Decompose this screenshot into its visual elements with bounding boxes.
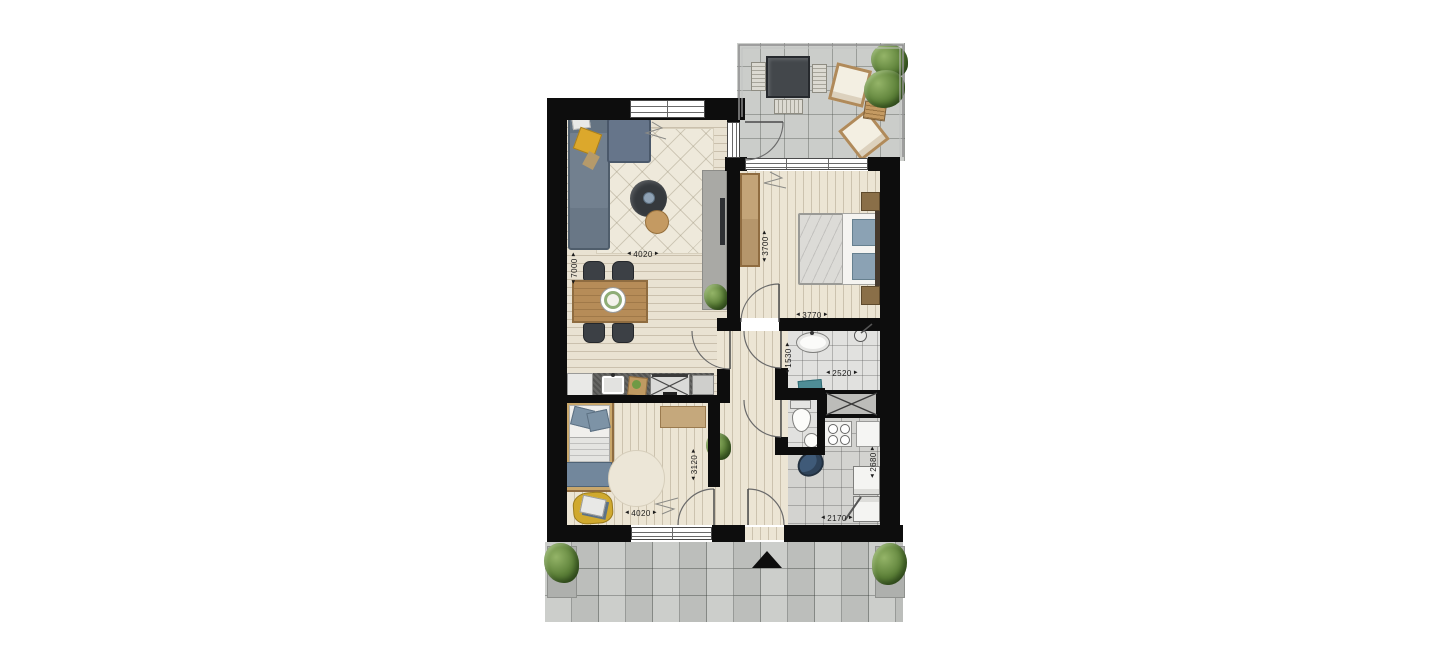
dimension-bedroom1-width: ◄3770► [791, 311, 833, 320]
dim-value: 3770 [802, 311, 821, 320]
dim-value: 7000 [570, 258, 579, 277]
dim-arrow-left-icon: ◄ [869, 473, 878, 479]
kitchen-fridge [567, 373, 593, 397]
bed2-duvet [566, 462, 612, 487]
dim-value: 4020 [633, 250, 652, 259]
dining-chair-3 [583, 323, 605, 343]
gallery-floor [545, 542, 903, 622]
floor-plan: ◄7000►◄4020►◄3700►◄3770►◄1530►◄2520►◄312… [0, 0, 1440, 648]
side-table-round [645, 210, 669, 234]
balcony-chair-bottom [774, 99, 803, 114]
window-bedroom2-bottom [631, 527, 712, 540]
dimension-bedroom2-width: ◄4020► [619, 509, 663, 518]
living-plant [704, 284, 728, 310]
dim-arrow-left-icon: ◄ [690, 475, 699, 481]
dimension-living-room-width: ◄4020► [621, 250, 665, 259]
dim-arrow-right-icon: ► [848, 514, 854, 523]
kitchen-herbs [632, 380, 641, 389]
dim-value: 3700 [761, 236, 770, 255]
dim-arrow-right-icon: ► [654, 250, 660, 259]
nightstand-top [861, 192, 880, 211]
dimension-bathroom-width: ◄2520► [822, 369, 862, 378]
dimension-bedroom2-depth: ◄3120► [690, 446, 699, 483]
wardrobe [740, 173, 760, 267]
bathroom-faucet [810, 331, 814, 335]
dim-arrow-right-icon: ► [784, 341, 793, 347]
washer-dial-3 [828, 435, 838, 445]
hall-floor [717, 331, 788, 525]
wall-right [880, 161, 900, 542]
wall-bedroom2-hall [708, 403, 720, 487]
dim-value: 3120 [690, 455, 699, 474]
wall-bedroom1-bottom-left [717, 318, 741, 331]
dim-arrow-left-icon: ◄ [626, 250, 632, 259]
balcony-table [766, 56, 810, 98]
wall-balcony-bottom-b [868, 157, 900, 171]
kitchen-faucet [611, 373, 615, 377]
wall-kitchen [567, 395, 720, 403]
washer-dial-2 [840, 424, 850, 434]
dim-arrow-left-icon: ◄ [624, 509, 630, 518]
dim-arrow-left-icon: ◄ [784, 369, 793, 375]
dim-arrow-left-icon: ◄ [820, 514, 826, 523]
dining-table-plate [600, 287, 626, 313]
bedroom2-rug-round [608, 450, 665, 507]
dimension-bathroom-depth: ◄1530► [784, 340, 793, 376]
dim-arrow-right-icon: ► [823, 311, 829, 320]
balcony-chair-right [812, 64, 827, 93]
bed2-sheet [569, 437, 610, 464]
bed1-pillow-bottom [852, 253, 876, 280]
bed1-duvet [798, 213, 844, 285]
kitchen-hood-knobs [652, 374, 688, 377]
sofa-chaise [607, 118, 651, 163]
washer-dial-1 [828, 424, 838, 434]
coffee-table-decor [643, 192, 655, 204]
wall-bottom-b [712, 525, 745, 542]
dim-arrow-right-icon: ► [570, 251, 579, 257]
balcony-chair-left [751, 62, 766, 91]
washer-dial-4 [840, 435, 850, 445]
dim-arrow-left-icon: ◄ [570, 279, 579, 285]
wall-toilet-bottom [775, 447, 825, 455]
kitchen-dishwasher [692, 375, 714, 395]
dimension-storage-width: ◄2170► [815, 514, 859, 523]
gallery-plant-left [544, 543, 579, 583]
wall-living-bedroom [727, 158, 740, 331]
dimension-living-room-depth: ◄7000► [570, 246, 579, 290]
tv [720, 198, 725, 245]
balcony-glass-door [727, 122, 740, 158]
wall-bottom-a [547, 525, 631, 542]
dining-chair-2 [612, 261, 634, 281]
balcony-plant-2 [864, 70, 905, 108]
window-bedroom1-balcony [745, 158, 868, 170]
nightstand-bottom [861, 286, 880, 305]
window-living-top [630, 100, 705, 118]
dim-arrow-left-icon: ◄ [795, 311, 801, 320]
desk [660, 406, 706, 428]
dim-arrow-left-icon: ◄ [761, 257, 770, 263]
dim-arrow-left-icon: ◄ [825, 369, 831, 378]
dining-chair-1 [583, 261, 605, 281]
dim-arrow-right-icon: ► [652, 509, 658, 518]
wall-left [547, 98, 567, 542]
bathroom-sink [796, 332, 830, 353]
dim-value: 2520 [832, 369, 851, 378]
dim-value: 2680 [869, 452, 878, 471]
dimension-bedroom1-depth: ◄3700► [761, 226, 770, 266]
dining-chair-4 [612, 323, 634, 343]
entry-threshold [745, 527, 784, 540]
dim-arrow-right-icon: ► [869, 445, 878, 451]
dim-arrow-right-icon: ► [853, 369, 859, 378]
dim-value: 4020 [631, 509, 650, 518]
dim-arrow-right-icon: ► [690, 447, 699, 453]
hall-floor-door-patch [708, 487, 720, 525]
kitchen-sink [601, 375, 625, 395]
dim-value: 2170 [827, 514, 846, 523]
dim-arrow-right-icon: ► [761, 229, 770, 235]
dim-value: 1530 [784, 348, 793, 367]
bed1-pillow-top [852, 219, 876, 246]
duct-shaft [823, 390, 880, 418]
dimension-storage-depth: ◄2680► [869, 444, 878, 480]
